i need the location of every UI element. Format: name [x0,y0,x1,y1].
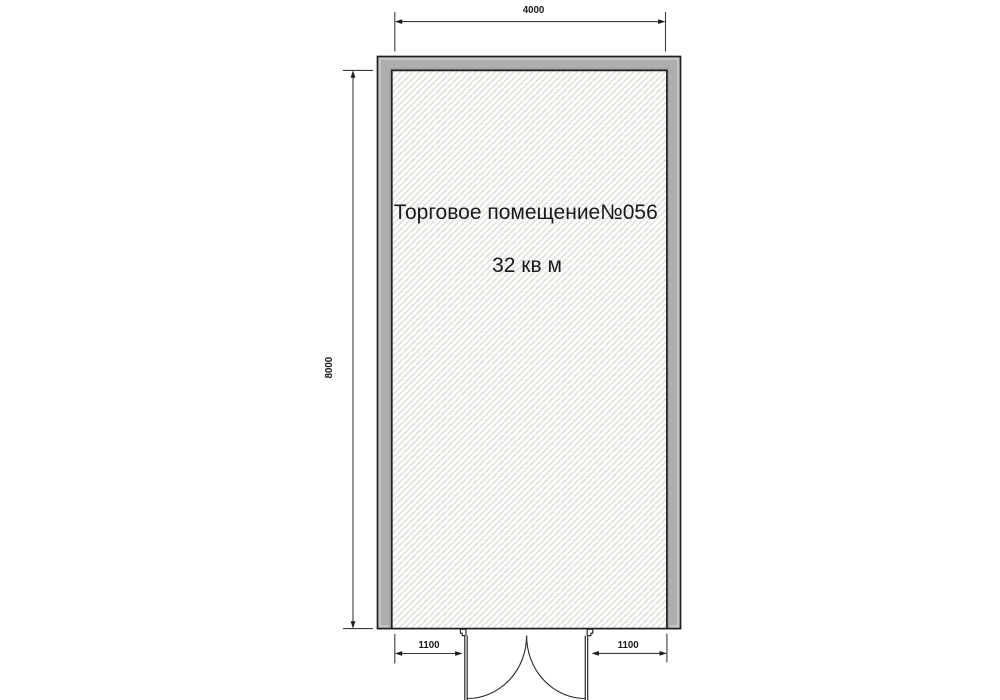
svg-text:Торговое помещение№056: Торговое помещение№056 [394,201,658,224]
svg-text:8000: 8000 [324,357,335,379]
svg-text:32 кв м: 32 кв м [492,254,562,277]
svg-text:1100: 1100 [418,640,439,651]
svg-text:4000: 4000 [523,5,545,16]
svg-text:1100: 1100 [618,640,639,651]
